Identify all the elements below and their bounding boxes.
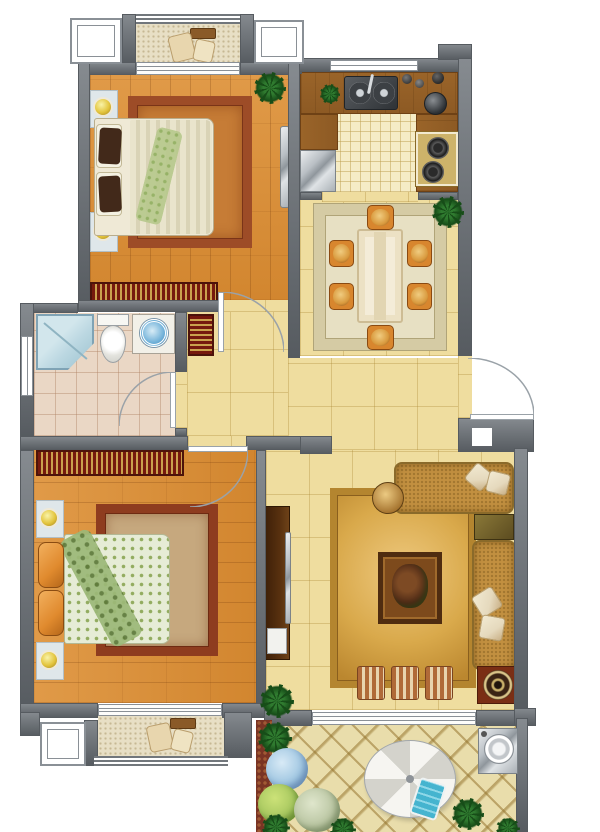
dining-chair bbox=[329, 283, 354, 310]
av-equipment bbox=[267, 628, 287, 654]
bed-pillow-dark bbox=[98, 175, 122, 212]
bathroom-door bbox=[170, 372, 176, 428]
wall bbox=[300, 192, 322, 200]
sliding-door bbox=[136, 62, 240, 75]
bed-pillow-dark bbox=[98, 127, 122, 164]
floor-plan bbox=[0, 0, 600, 832]
entry-niche bbox=[472, 428, 492, 446]
wall bbox=[246, 436, 304, 450]
table-runner bbox=[374, 232, 386, 320]
round-side-table bbox=[372, 482, 404, 514]
hydrangea bbox=[266, 748, 308, 790]
wall bbox=[476, 710, 516, 726]
wall bbox=[78, 300, 222, 312]
washer-dial bbox=[481, 731, 487, 737]
pass-through bbox=[322, 192, 418, 202]
herb-pot bbox=[320, 84, 340, 104]
small-palm bbox=[452, 798, 484, 830]
dining-chair bbox=[367, 205, 394, 230]
stove-burner bbox=[427, 137, 449, 159]
table-lamp bbox=[93, 97, 113, 117]
bay-window bbox=[254, 20, 304, 64]
bay-window bbox=[40, 722, 86, 766]
wall bbox=[288, 62, 300, 358]
wall bbox=[20, 450, 34, 712]
wall bbox=[20, 712, 40, 736]
balcony-railing bbox=[136, 14, 240, 24]
jar bbox=[432, 72, 444, 84]
wall bbox=[20, 436, 188, 450]
balcony-table bbox=[190, 28, 216, 39]
wall bbox=[122, 14, 136, 64]
jar bbox=[402, 74, 412, 84]
bedroom-2-wardrobe bbox=[36, 450, 184, 476]
wall bbox=[240, 14, 254, 64]
sliding-door bbox=[98, 704, 222, 716]
washer-drum bbox=[484, 734, 514, 764]
sofa-pillow bbox=[478, 614, 506, 642]
bay-window bbox=[70, 18, 122, 64]
wall bbox=[300, 436, 332, 454]
refrigerator bbox=[300, 150, 336, 192]
bathroom-window bbox=[21, 336, 33, 396]
entry-door bbox=[470, 414, 534, 420]
entry-door-swing bbox=[468, 358, 534, 416]
bedroom-2-door-swing bbox=[190, 450, 248, 507]
bed-pillow-orange bbox=[38, 542, 64, 588]
wall bbox=[514, 448, 528, 716]
wall bbox=[78, 62, 90, 312]
shoe-cabinet bbox=[188, 314, 214, 356]
tv-screen bbox=[285, 532, 291, 624]
ottoman bbox=[391, 666, 419, 700]
kitchen-counter-left bbox=[300, 114, 338, 150]
ottoman bbox=[357, 666, 385, 700]
table-lamp bbox=[39, 508, 59, 528]
bedroom-2-door bbox=[188, 446, 248, 452]
dining-chair bbox=[329, 240, 354, 267]
sink-basin bbox=[373, 82, 395, 104]
coffee-table-plant bbox=[392, 564, 428, 608]
potted-plant bbox=[260, 684, 294, 718]
wall bbox=[224, 712, 252, 758]
potted-plant bbox=[432, 196, 464, 228]
small-palm bbox=[496, 818, 520, 832]
kettle bbox=[424, 92, 447, 115]
stove-burner bbox=[422, 161, 444, 183]
bed-pillow-orange bbox=[38, 590, 64, 636]
entry-block bbox=[458, 418, 534, 452]
bathroom-door-swing bbox=[119, 372, 173, 426]
dining-chair bbox=[407, 240, 432, 267]
wall bbox=[256, 450, 266, 718]
wall bbox=[175, 312, 187, 372]
balcony-table bbox=[170, 718, 196, 729]
kitchen-window bbox=[330, 60, 418, 71]
potted-plant bbox=[254, 72, 286, 104]
bedroom-1-door bbox=[218, 292, 224, 352]
speaker-cone bbox=[483, 670, 513, 700]
balcony-railing bbox=[94, 756, 228, 766]
sliding-door bbox=[312, 712, 476, 725]
bedroom-1-door-swing bbox=[221, 292, 284, 352]
wall bbox=[175, 428, 187, 436]
ottoman bbox=[425, 666, 453, 700]
parasol-center bbox=[406, 775, 414, 783]
door-opening bbox=[175, 372, 187, 428]
dining-chair bbox=[407, 283, 432, 310]
jar bbox=[415, 79, 424, 88]
vanity-basin bbox=[140, 319, 168, 347]
table-lamp bbox=[39, 650, 59, 670]
dining-chair bbox=[367, 325, 394, 350]
sofa-corner-table bbox=[474, 514, 514, 540]
